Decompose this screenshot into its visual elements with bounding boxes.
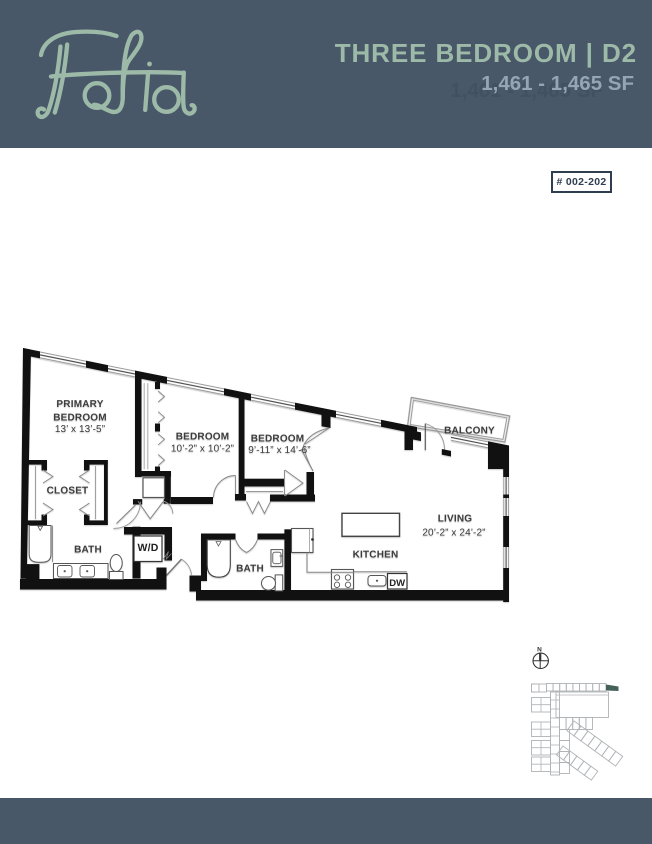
svg-text:KITCHEN: KITCHEN [353, 549, 399, 560]
svg-text:BALCONY: BALCONY [444, 426, 495, 437]
svg-text:9’-11” x 14’-6”: 9’-11” x 14’-6” [248, 445, 310, 456]
svg-text:N: N [537, 647, 542, 654]
svg-text:10’-2” x 10’-2”: 10’-2” x 10’-2” [171, 444, 234, 455]
svg-text:LIVING: LIVING [438, 514, 473, 525]
svg-text:DW: DW [389, 578, 405, 589]
svg-text:CLOSET: CLOSET [47, 486, 89, 497]
svg-text:BEDROOM: BEDROOM [251, 434, 305, 445]
svg-text:BEDROOM: BEDROOM [53, 413, 107, 424]
svg-text:20’-2” x 24’-2”: 20’-2” x 24’-2” [422, 528, 485, 539]
svg-text:13’ x 13’-5”: 13’ x 13’-5” [55, 424, 105, 435]
svg-text:BEDROOM: BEDROOM [176, 432, 230, 443]
svg-text:BATH: BATH [236, 564, 264, 575]
svg-text:W/D: W/D [137, 542, 158, 554]
svg-text:BATH: BATH [74, 545, 102, 556]
svg-text:PRIMARY: PRIMARY [56, 399, 103, 410]
